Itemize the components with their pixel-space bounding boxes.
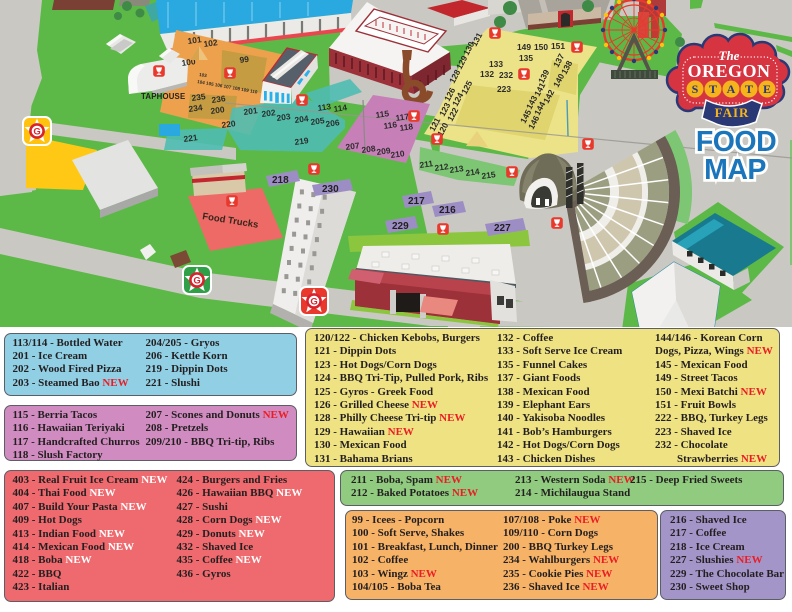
svg-text:MAP: MAP bbox=[704, 154, 766, 186]
svg-text:101: 101 bbox=[187, 34, 203, 46]
svg-text:230: 230 bbox=[322, 184, 339, 195]
svg-text:T: T bbox=[745, 82, 753, 96]
svg-text:135: 135 bbox=[519, 53, 533, 63]
svg-text:151: 151 bbox=[551, 41, 565, 51]
svg-text:213: 213 bbox=[449, 163, 465, 175]
svg-text:212: 212 bbox=[434, 161, 450, 173]
svg-text:207: 207 bbox=[345, 140, 361, 152]
svg-text:203: 203 bbox=[276, 111, 292, 123]
svg-text:204: 204 bbox=[294, 113, 310, 125]
svg-text:219: 219 bbox=[294, 135, 310, 147]
svg-text:FAIR: FAIR bbox=[715, 105, 750, 120]
svg-text:234: 234 bbox=[188, 102, 204, 114]
svg-text:216: 216 bbox=[439, 205, 456, 216]
svg-text:206: 206 bbox=[325, 117, 341, 129]
svg-text:210: 210 bbox=[390, 148, 406, 160]
svg-text:223: 223 bbox=[497, 84, 511, 94]
svg-text:OREGON: OREGON bbox=[687, 61, 770, 81]
svg-text:TAPHOUSE: TAPHOUSE bbox=[141, 92, 185, 101]
svg-text:116: 116 bbox=[383, 119, 398, 131]
svg-text:202: 202 bbox=[261, 107, 277, 119]
svg-text:A: A bbox=[727, 82, 736, 96]
svg-text:99: 99 bbox=[239, 54, 250, 65]
svg-text:201: 201 bbox=[243, 105, 259, 117]
svg-text:214: 214 bbox=[465, 166, 481, 178]
svg-text:E: E bbox=[763, 82, 771, 96]
svg-text:102: 102 bbox=[203, 37, 219, 49]
svg-text:132: 132 bbox=[480, 69, 494, 79]
svg-text:133: 133 bbox=[489, 59, 503, 69]
svg-text:218: 218 bbox=[272, 175, 289, 186]
svg-text:217: 217 bbox=[408, 196, 425, 207]
svg-text:200: 200 bbox=[210, 104, 226, 116]
svg-text:221: 221 bbox=[183, 132, 199, 144]
svg-text:150: 150 bbox=[534, 42, 548, 52]
svg-text:113: 113 bbox=[317, 101, 332, 113]
svg-text:215: 215 bbox=[481, 169, 497, 181]
svg-text:118: 118 bbox=[399, 121, 414, 133]
svg-text:114: 114 bbox=[333, 102, 348, 114]
svg-text:220: 220 bbox=[221, 118, 237, 130]
svg-text:208: 208 bbox=[361, 143, 377, 155]
svg-text:211: 211 bbox=[419, 158, 434, 170]
svg-text:G: G bbox=[193, 275, 200, 286]
svg-text:235: 235 bbox=[191, 91, 207, 103]
svg-text:205: 205 bbox=[310, 115, 326, 127]
svg-text:232: 232 bbox=[499, 70, 513, 80]
svg-text:227: 227 bbox=[494, 223, 511, 234]
svg-text:229: 229 bbox=[392, 221, 409, 232]
svg-text:149: 149 bbox=[517, 42, 531, 52]
svg-text:T: T bbox=[709, 82, 717, 96]
svg-text:115: 115 bbox=[375, 108, 390, 120]
svg-text:G: G bbox=[310, 296, 317, 307]
svg-text:S: S bbox=[692, 82, 699, 96]
svg-text:236: 236 bbox=[211, 93, 227, 105]
